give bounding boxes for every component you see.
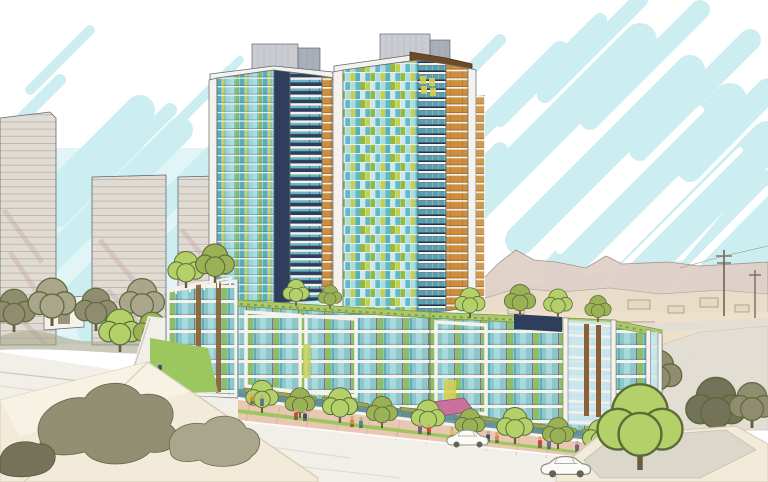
olive-mass-3 (0, 442, 55, 477)
left-tower-core-band (274, 70, 290, 303)
left-tower-facade-right (290, 72, 322, 302)
right-tower-facade-patchwork (343, 60, 418, 315)
wood-fin-1 (584, 324, 589, 416)
rendering-svg (0, 0, 768, 482)
left-tower-orange-band (322, 76, 332, 300)
right-tower-navy-band (418, 60, 446, 313)
navy-fascia (514, 314, 562, 332)
right-tower-balcony-rail (484, 96, 485, 302)
yellow-accent-1 (303, 344, 311, 378)
right-tower-orange-band (446, 64, 468, 311)
yellow-accent-2 (444, 380, 456, 402)
architectural-rendering (0, 0, 768, 482)
right-tower-white-edge-right (468, 68, 476, 308)
right-tower (333, 34, 485, 316)
right-tower-white-edge (333, 70, 343, 316)
wood-fin-2 (596, 325, 601, 417)
right-tower-side-balconies (476, 95, 485, 303)
